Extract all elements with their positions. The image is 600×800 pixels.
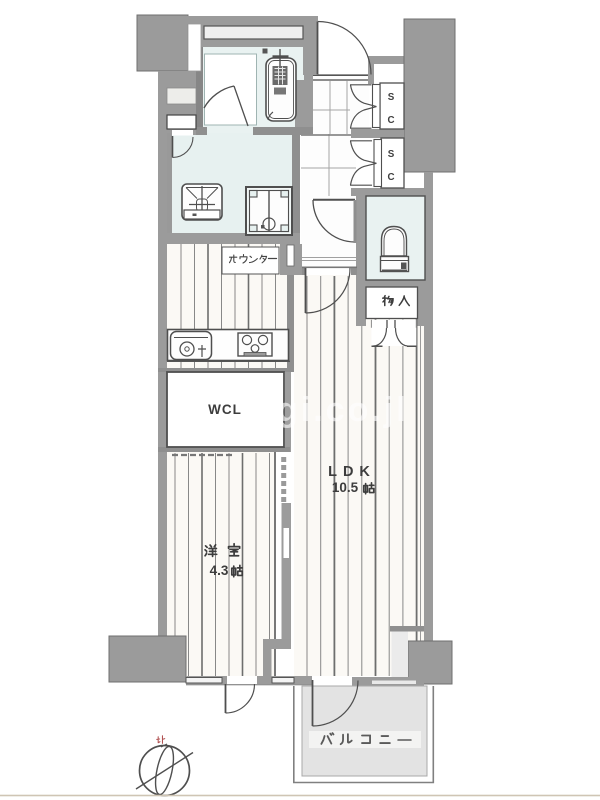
svg-text:WCL: WCL [208, 402, 242, 417]
svg-text:S: S [388, 92, 395, 103]
svg-text:C: C [387, 172, 394, 183]
svg-text:10.5: 10.5 [332, 480, 359, 495]
svg-text:LDK: LDK [328, 464, 376, 480]
svg-text:gi.co.jl: gi.co.jl [277, 391, 409, 429]
svg-text:4.3: 4.3 [210, 563, 229, 578]
svg-text:S: S [388, 149, 395, 160]
svg-text:C: C [387, 115, 394, 126]
